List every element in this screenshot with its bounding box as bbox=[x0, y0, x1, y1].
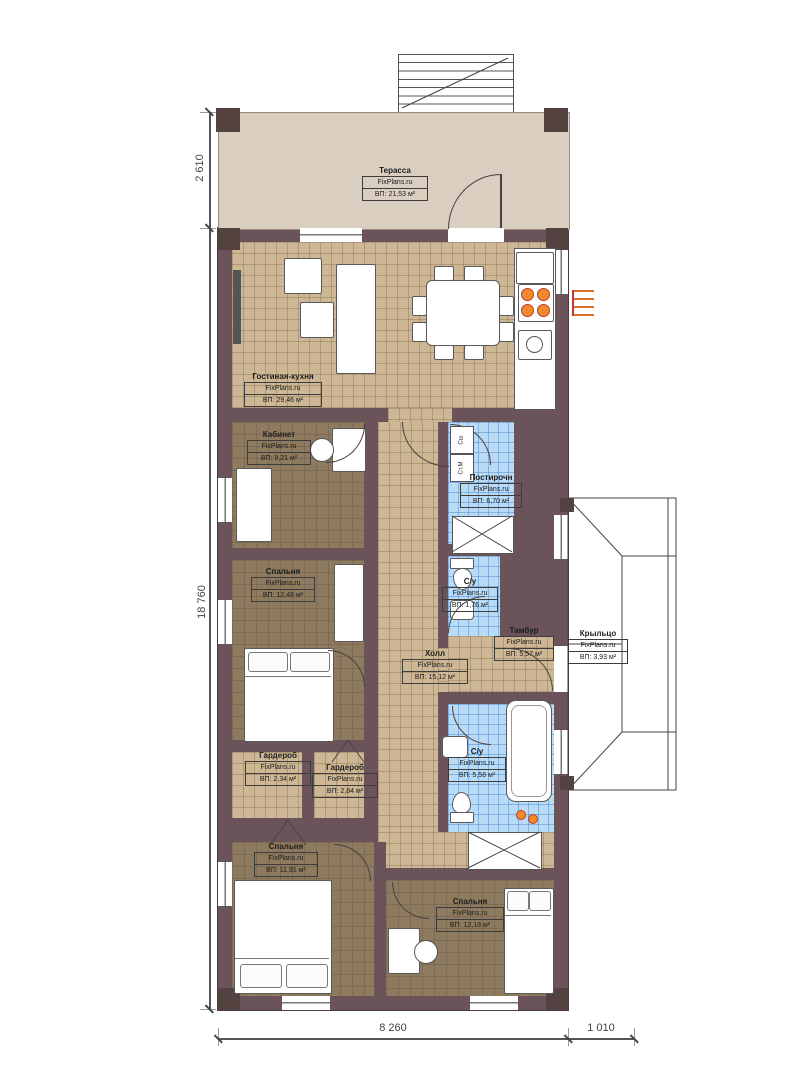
pillow-icon bbox=[529, 891, 551, 911]
watermark: FixPlans.ru bbox=[246, 762, 310, 774]
entry-door-opening bbox=[554, 646, 568, 692]
wall bbox=[364, 422, 378, 752]
burner-icon bbox=[537, 304, 550, 317]
room-info-box: FixPlans.ru ВП: 9,21 м² bbox=[247, 440, 311, 465]
room-info-box: FixPlans.ru ВП: 12,48 м² bbox=[251, 577, 315, 602]
armchair-icon bbox=[284, 258, 322, 294]
room-info-box: FixPlans.ru ВП: 5,57 м² bbox=[494, 636, 554, 661]
wardrobe-cabinet-icon bbox=[334, 564, 364, 642]
watermark: FixPlans.ru bbox=[252, 578, 314, 590]
room-area: ВП: 15,12 м² bbox=[403, 672, 467, 683]
room-info-box: FixPlans.ru ВП: 1,76 м² bbox=[442, 587, 498, 612]
dimension-house-length: 18 760 bbox=[196, 578, 208, 626]
dimension-terrace-depth: 2 610 bbox=[194, 148, 206, 188]
fridge-icon bbox=[516, 252, 554, 284]
door-leaf-icon bbox=[500, 174, 502, 228]
room-info-box: FixPlans.ru ВП: 21,53 м² bbox=[362, 176, 428, 201]
pillow-icon bbox=[286, 964, 328, 988]
terrace-post-icon bbox=[544, 108, 568, 132]
room-name: Кабинет bbox=[247, 430, 311, 439]
room-name: Крыльцо bbox=[568, 629, 628, 638]
dining-table-icon bbox=[426, 280, 500, 346]
sofa-icon bbox=[336, 264, 376, 374]
room-name: Тамбур bbox=[494, 626, 554, 635]
watermark: FixPlans.ru bbox=[363, 177, 427, 189]
room-name: Терасса bbox=[362, 166, 428, 175]
wall bbox=[232, 548, 364, 560]
chair-icon bbox=[499, 296, 514, 316]
room-area: ВП: 3,93 м² bbox=[569, 652, 627, 663]
blanket-line bbox=[235, 958, 329, 959]
terrace-post-icon bbox=[216, 108, 240, 132]
room-name: Гостиная-кухня bbox=[244, 372, 322, 381]
chair-icon bbox=[412, 322, 427, 342]
window-icon bbox=[554, 515, 568, 559]
porch-post-icon bbox=[560, 776, 574, 790]
room-label-bedroom-2: Спальня FixPlans.ru ВП: 11,91 м² bbox=[254, 842, 318, 877]
room-info-box: FixPlans.ru ВП: 29,46 м² bbox=[244, 382, 322, 407]
room-area: ВП: 5,58 м² bbox=[449, 770, 505, 781]
blanket-line bbox=[245, 676, 331, 677]
watermark: FixPlans.ru bbox=[248, 441, 310, 453]
wall bbox=[500, 556, 554, 636]
room-label-terrace: Терасса FixPlans.ru ВП: 21,53 м² bbox=[362, 166, 428, 201]
room-info-box: FixPlans.ru ВП: 3,93 м² bbox=[568, 639, 628, 664]
watermark: FixPlans.ru bbox=[569, 640, 627, 652]
watermark: FixPlans.ru bbox=[449, 758, 505, 770]
room-area: ВП: 2,34 м² bbox=[246, 774, 310, 785]
room-info-box: FixPlans.ru ВП: 15,12 м² bbox=[402, 659, 468, 684]
window-icon bbox=[282, 996, 330, 1010]
watermark: FixPlans.ru bbox=[495, 637, 553, 649]
towel-radiator-icon bbox=[516, 810, 526, 820]
room-name: Спальня bbox=[436, 897, 504, 906]
room-name: Гардероб bbox=[312, 763, 378, 772]
room-info-box: FixPlans.ru ВП: 2,84 м² bbox=[312, 773, 378, 798]
shelving-icon bbox=[452, 516, 514, 554]
room-info-box: FixPlans.ru ВП: 2,34 м² bbox=[245, 761, 311, 786]
corner-pier-icon bbox=[546, 228, 568, 250]
bathtub-inner bbox=[511, 705, 547, 797]
room-area: ВП: 2,84 м² bbox=[313, 786, 377, 797]
dimension-porch-width: 1 010 bbox=[568, 1022, 634, 1034]
dimension-line bbox=[209, 112, 211, 228]
wall bbox=[438, 692, 448, 832]
room-label-bathroom-upper: С/у FixPlans.ru ВП: 1,76 м² bbox=[442, 577, 498, 612]
dimension-house-width: 8 260 bbox=[343, 1022, 443, 1034]
floor-plan-canvas: Сш Ст.М bbox=[0, 0, 792, 1080]
dryer-label: Сш bbox=[459, 435, 465, 444]
room-area: ВП: 1,76 м² bbox=[443, 600, 497, 611]
exterior-stairs-icon bbox=[398, 54, 514, 114]
window-icon bbox=[218, 478, 232, 522]
chair-icon bbox=[499, 322, 514, 342]
window-icon bbox=[470, 996, 518, 1010]
coffee-table-icon bbox=[300, 302, 334, 338]
corner-pier-icon bbox=[218, 228, 240, 250]
wall bbox=[374, 842, 386, 996]
room-area: ВП: 29,46 м² bbox=[245, 395, 321, 406]
watermark: FixPlans.ru bbox=[403, 660, 467, 672]
toilet-tank-icon bbox=[450, 812, 474, 823]
toilet-icon bbox=[452, 792, 471, 814]
room-label-vestibule: Тамбур FixPlans.ru ВП: 5,57 м² bbox=[494, 626, 554, 661]
room-label-living-kitchen: Гостиная-кухня FixPlans.ru ВП: 29,46 м² bbox=[244, 372, 322, 407]
room-label-bedroom-3: Спальня FixPlans.ru ВП: 12,18 м² bbox=[436, 897, 504, 932]
pillow-icon bbox=[507, 891, 529, 911]
window-icon bbox=[218, 862, 232, 906]
room-info-box: FixPlans.ru ВП: 5,58 м² bbox=[448, 757, 506, 782]
room-label-bathroom-lower: С/у FixPlans.ru ВП: 5,58 м² bbox=[448, 747, 506, 782]
room-name: Холл bbox=[402, 649, 468, 658]
burner-icon bbox=[521, 304, 534, 317]
office-chair-icon bbox=[414, 940, 438, 964]
room-label-porch: Крыльцо FixPlans.ru ВП: 3,93 м² bbox=[568, 629, 628, 664]
room-label-wardrobe-1: Гардероб FixPlans.ru ВП: 2,34 м² bbox=[245, 751, 311, 786]
room-info-box: FixPlans.ru ВП: 11,91 м² bbox=[254, 852, 318, 877]
room-label-wardrobe-2: Гардероб FixPlans.ru ВП: 2,84 м² bbox=[312, 763, 378, 798]
room-area: ВП: 12,18 м² bbox=[437, 920, 503, 931]
chair-icon bbox=[434, 345, 454, 360]
window-icon bbox=[554, 730, 568, 774]
room-name: Спальня bbox=[251, 567, 315, 576]
room-label-laundry: Постирочн FixPlans.ru ВП: 6,70 м² bbox=[460, 473, 522, 508]
towel-radiator-icon bbox=[528, 814, 538, 824]
dryer-icon: Сш bbox=[450, 426, 474, 454]
chair-icon bbox=[464, 266, 484, 281]
room-label-hall: Холл FixPlans.ru ВП: 15,12 м² bbox=[402, 649, 468, 684]
chair-icon bbox=[464, 345, 484, 360]
room-area: ВП: 12,48 м² bbox=[252, 590, 314, 601]
watermark: FixPlans.ru bbox=[461, 484, 521, 496]
window-icon bbox=[554, 250, 568, 294]
room-area: ВП: 5,57 м² bbox=[495, 649, 553, 660]
room-info-box: FixPlans.ru ВП: 12,18 м² bbox=[436, 907, 504, 932]
chair-icon bbox=[412, 296, 427, 316]
sink-basin-icon bbox=[526, 336, 543, 353]
pillow-icon bbox=[240, 964, 282, 988]
chair-icon bbox=[434, 266, 454, 281]
room-name: С/у bbox=[442, 577, 498, 586]
dimension-line bbox=[209, 228, 211, 1010]
burner-icon bbox=[521, 288, 534, 301]
porch-post-icon bbox=[560, 498, 574, 512]
pillow-icon bbox=[290, 652, 330, 672]
room-label-office: Кабинет FixPlans.ru ВП: 9,21 м² bbox=[247, 430, 311, 465]
pillow-icon bbox=[248, 652, 288, 672]
room-area: ВП: 11,91 м² bbox=[255, 865, 317, 876]
radiator-icon bbox=[572, 290, 594, 316]
room-label-bedroom-1: Спальня FixPlans.ru ВП: 12,48 м² bbox=[251, 567, 315, 602]
watermark: FixPlans.ru bbox=[313, 774, 377, 786]
tv-unit-icon bbox=[233, 270, 241, 344]
wall bbox=[452, 408, 554, 422]
hall-floor bbox=[378, 408, 438, 832]
watermark: FixPlans.ru bbox=[255, 853, 317, 865]
terrace-door-opening bbox=[448, 228, 504, 242]
room-area: ВП: 6,70 м² bbox=[461, 496, 521, 507]
room-name: Постирочн bbox=[460, 473, 522, 482]
blanket-line bbox=[505, 915, 551, 916]
hall-opening bbox=[388, 408, 452, 422]
room-area: ВП: 9,21 м² bbox=[248, 453, 310, 464]
office-sofa-icon bbox=[236, 468, 272, 542]
wall bbox=[232, 818, 378, 842]
room-name: Гардероб bbox=[245, 751, 311, 760]
watermark: FixPlans.ru bbox=[245, 383, 321, 395]
watermark: FixPlans.ru bbox=[443, 588, 497, 600]
shelving-icon bbox=[468, 832, 542, 870]
window-icon bbox=[300, 228, 362, 242]
dimension-line bbox=[568, 1038, 634, 1040]
room-info-box: FixPlans.ru ВП: 6,70 м² bbox=[460, 483, 522, 508]
burner-icon bbox=[537, 288, 550, 301]
room-name: Спальня bbox=[254, 842, 318, 851]
window-icon bbox=[218, 600, 232, 644]
dimension-line bbox=[218, 1038, 568, 1040]
watermark: FixPlans.ru bbox=[437, 908, 503, 920]
room-area: ВП: 21,53 м² bbox=[363, 189, 427, 200]
room-name: С/у bbox=[448, 747, 506, 756]
wall bbox=[232, 408, 388, 422]
